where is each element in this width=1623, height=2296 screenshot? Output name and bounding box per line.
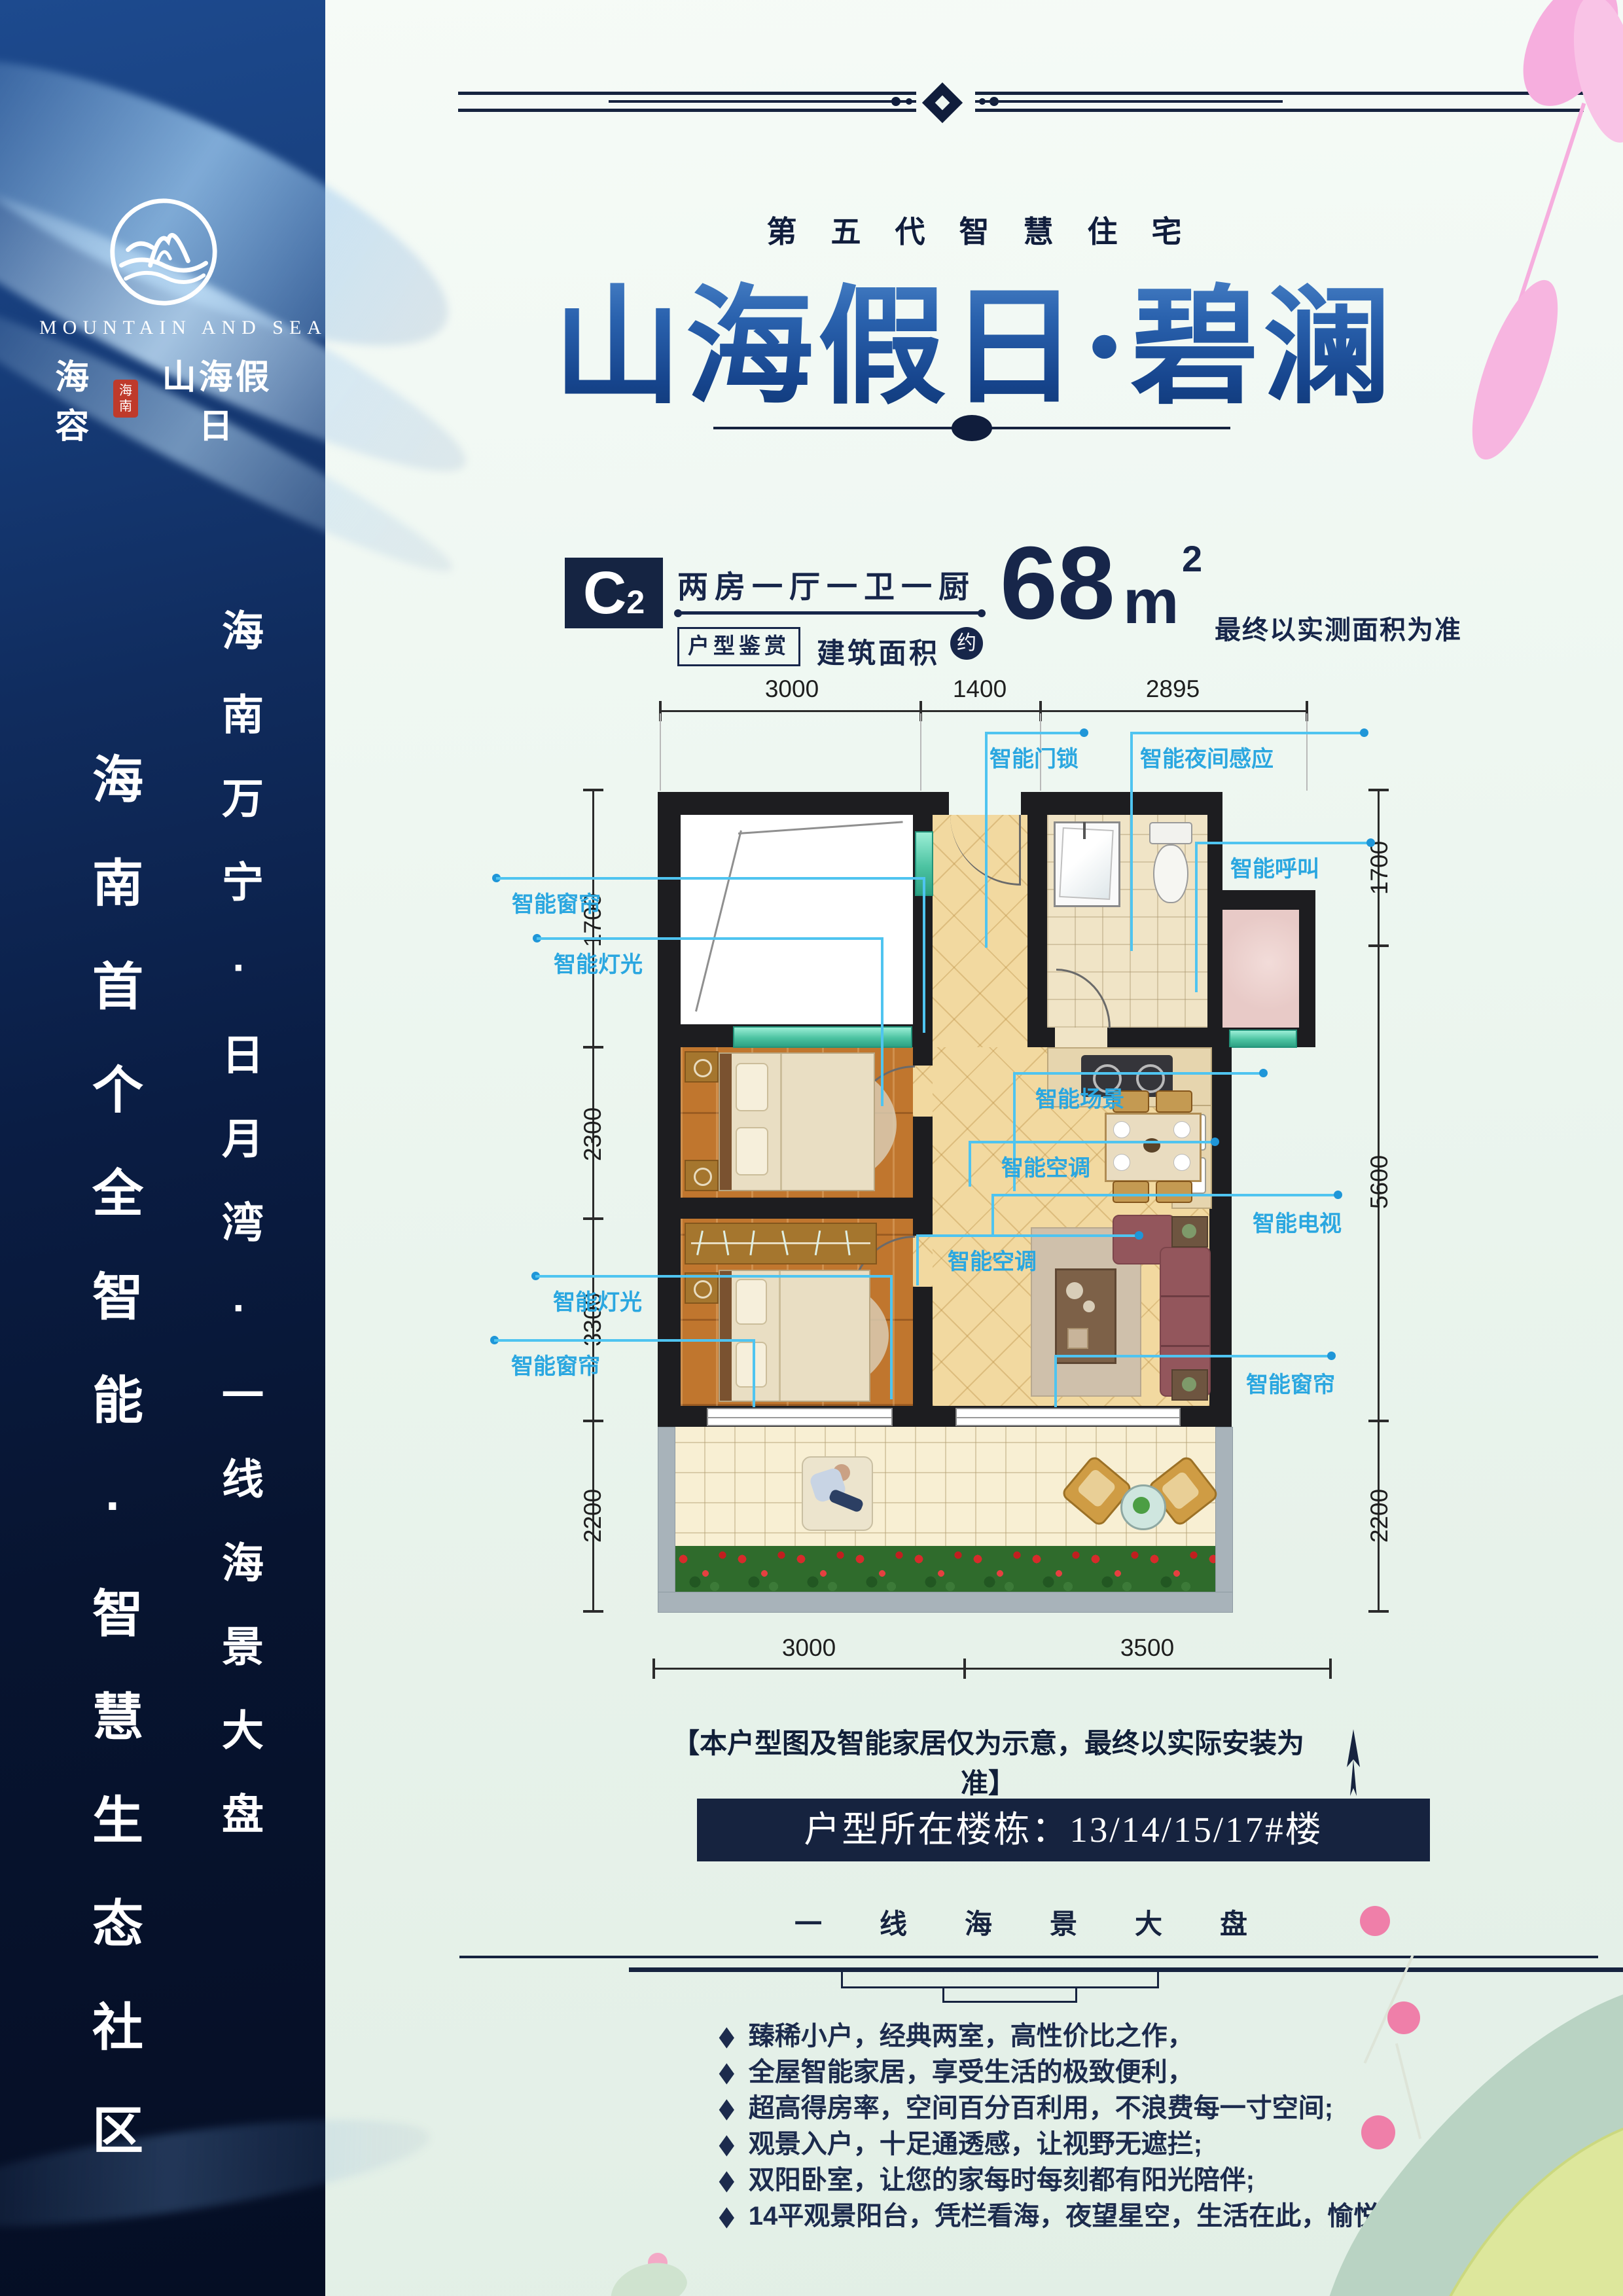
coffee-table-icon [1055,1268,1116,1364]
header-ornament-line [975,109,1584,112]
lounger-icon [802,1456,873,1531]
sidebar-slogan-community: 海南首个全智能·智慧生态社区 [77,753,151,2207]
smart-label-light-2: 智能灯光 [553,1284,642,1316]
berry-decoration [1360,1906,1390,1936]
dim-bottom-1: 3000 [770,1634,848,1662]
bullet-diamond-icon: ◆ [719,2021,734,2051]
area-label: 建筑面积 [817,631,940,672]
poster-page: MOUNTAIN AND SEA 海容 海 南 山海假日 海南万宁·日月湾·一线… [0,0,1623,2296]
dim-tick [1329,1659,1332,1679]
header-ornament-dot [906,98,912,105]
area-note: 最终以实测面积为准 [1215,609,1462,647]
label-line [890,1275,893,1399]
person-legs [828,1488,865,1513]
dim-tick [1368,1420,1389,1422]
divider-dot [978,609,986,617]
dim-right-3: 2200 [1366,1477,1393,1555]
label-line [1054,1355,1057,1407]
area-unit: m [1123,571,1179,634]
smart-label-curtain-3: 智能窗帘 [1246,1367,1335,1399]
mountain-sea-logo-icon [108,196,219,308]
label-dot [1360,728,1368,737]
logo-project-name: 山海假日 [146,350,288,448]
label-dot [1259,1069,1268,1077]
label-line [923,877,925,1033]
label-line [985,732,988,948]
smart-label-call: 智能呼叫 [1230,851,1319,883]
dim-tick [583,1046,603,1049]
adjacent-unit-area [681,815,913,1024]
label-line [496,877,925,880]
logo-english-text: MOUNTAIN AND SEA [39,317,288,339]
side-table-icon [1171,1216,1208,1247]
dining-chair-icon [1156,1090,1192,1113]
dim-line-bottom [654,1668,1332,1670]
label-dot [1334,1191,1342,1199]
wall [1209,1047,1232,1406]
feature-item: ◆14平观景阳台，凭栏看海，夜望星空，生活在此，愉悦一生。 [717,2195,1458,2233]
area-value: 68 [1000,531,1115,635]
wardrobe-icon [685,1223,877,1265]
label-dot [1327,1352,1336,1360]
dim-ext [920,713,921,791]
window-strip [1229,1030,1297,1048]
wall [1027,815,1047,1047]
approx-badge: 约 [950,627,983,660]
header-ornament-dot [891,97,901,106]
label-line [1130,732,1133,951]
sidebar-streak [0,2098,435,2248]
door-gap [1055,1028,1107,1047]
dim-line-top [660,710,1307,712]
feature-item: ◆观景入户，十足通透感，让视野无遮拦; [717,2123,1202,2161]
label-dot [1080,728,1088,737]
dim-ext [660,713,661,791]
berry-decoration [1387,2001,1420,2034]
header-ornament-line [458,92,916,95]
dim-left-2: 2300 [579,1095,607,1174]
balcony-flower-bed [674,1546,1215,1594]
balcony-window [707,1408,893,1426]
wall [1021,792,1222,815]
nightstand-icon [685,1051,719,1083]
dim-tick [963,1659,966,1679]
logo-chinese-row: 海容 海 南 山海假日 [39,350,288,448]
dim-top-2: 1400 [940,675,1019,703]
dim-top-1: 3000 [753,675,831,703]
label-line [753,1339,755,1407]
label-line [1013,1072,1264,1075]
feature-item: ◆臻稀小户，经典两室，高性价比之作， [717,2015,1194,2053]
label-line [969,1141,971,1187]
balcony-rail [658,1592,1233,1613]
label-line [1054,1355,1332,1357]
strip-line-2 [629,1967,1623,1972]
bullet-diamond-icon: ◆ [719,2165,734,2195]
berry-stem [1395,2043,1421,2140]
dining-table-icon [1105,1113,1202,1182]
smart-label-night-sensor: 智能夜间感应 [1140,741,1274,773]
strip-title: 一线海景大盘 [419,1902,1623,1942]
label-line [1195,842,1370,844]
strip-ornament [942,1986,1077,2003]
label-dot [1211,1138,1219,1146]
dim-right-2: 5600 [1366,1143,1393,1221]
bullet-diamond-icon: ◆ [719,2129,734,2159]
smart-label-tv: 智能电视 [1253,1206,1342,1238]
label-line [991,1194,1339,1196]
bed-icon [719,1052,875,1191]
brand-logo: MOUNTAIN AND SEA 海容 海 南 山海假日 [39,196,288,419]
dim-bottom-2: 3500 [1108,1634,1186,1662]
label-dot [1135,1231,1143,1240]
label-line [969,1141,1216,1143]
bullet-diamond-icon: ◆ [719,2057,734,2087]
dim-tick [583,1217,603,1220]
label-line [916,1234,1140,1237]
balcony-rail [658,1427,675,1595]
header-ornament-line [975,92,1584,95]
feature-item: ◆超高得房率，空间百分百利用，不浪费每一寸空间; [717,2087,1333,2125]
north-compass-icon [1335,1728,1372,1800]
dim-tick [583,1420,603,1422]
label-line [1195,842,1198,992]
logo-seal-icon: 海 南 [113,380,139,418]
dim-tick [583,1610,603,1613]
label-dot [1366,838,1375,847]
label-line [916,1234,919,1285]
bullet-diamond-icon: ◆ [719,2093,734,2123]
nightstand-icon [685,1160,719,1191]
balcony-table-icon [1120,1484,1166,1530]
shower-icon [1054,821,1120,907]
title-divider-ellipse [952,415,992,441]
header-ornament-line [458,109,916,112]
smart-label-ac-1: 智能空调 [1001,1150,1090,1182]
dining-chair-icon [1113,1181,1149,1203]
smart-label-light-1: 智能灯光 [554,946,643,978]
toilet-tank-icon [1149,822,1192,844]
label-line [985,732,1085,734]
balcony-rail [1215,1427,1233,1595]
area-superscript: 2 [1182,541,1202,577]
label-line [494,1339,755,1342]
unit-layout-text: 两房一厅一卫一厨 [677,562,976,607]
label-line [881,937,883,1106]
plan-disclaimer-note: 【本户型图及智能家居仅为示意，最终以实际安装为准】 [654,1721,1322,1801]
dim-tick [1368,1610,1389,1613]
smart-label-door-lock: 智能门锁 [990,741,1079,773]
label-line [535,1275,893,1278]
page-title: 山海假日·碧澜 [325,243,1623,429]
smart-label-curtain-1: 智能窗帘 [512,886,601,918]
feature-item: ◆双阳卧室，让您的家每时每刻都有阳光陪伴; [717,2159,1255,2197]
wall [1222,890,1315,910]
berry-decoration [1361,2115,1395,2149]
sidebar-panel: MOUNTAIN AND SEA 海容 海 南 山海假日 海南万宁·日月湾·一线… [0,0,325,2296]
side-table-icon [1171,1369,1208,1401]
smart-label-scene: 智能场景 [1035,1081,1124,1113]
header-ornament-line [609,100,916,103]
dim-tick [583,789,603,791]
wall [1207,792,1222,1047]
bed-icon [719,1270,870,1402]
dining-chair-icon [1156,1181,1192,1203]
feature-item: ◆全屋智能家居，享受生活的极致便利， [717,2051,1194,2089]
dim-tick [1368,944,1389,947]
toilet-bowl-icon [1153,844,1188,903]
dim-tick [652,1659,655,1679]
unit-code-badge: C2 [565,558,663,628]
bullet-diamond-icon: ◆ [719,2201,734,2231]
utility-nook-floor [1222,910,1299,1028]
unit-divider-line [679,611,982,615]
wall [1299,910,1315,1047]
dim-tick [1368,789,1389,791]
label-line [537,937,883,940]
sidebar-slogan-location: 海南万宁·日月湾·一线海景大盘 [209,609,270,1876]
dim-ext [1306,713,1308,791]
label-line [991,1194,994,1234]
window-strip [733,1026,912,1048]
wall [658,792,949,815]
strip-line-1 [459,1956,1598,1958]
divider-dot [674,609,682,617]
smart-label-curtain-2: 智能窗帘 [511,1348,600,1380]
dim-left-4: 2200 [579,1477,607,1555]
smart-label-ac-2: 智能空调 [948,1244,1037,1276]
logo-brand-text: 海容 [39,350,105,448]
wall [681,1198,913,1219]
wall [658,792,681,1406]
label-line [1130,732,1364,734]
header-ornament-line [975,100,1283,103]
door-gap [913,1066,933,1117]
balcony-window [955,1408,1181,1426]
unit-tag-box: 户型鉴赏 [677,627,800,666]
dim-top-3: 2895 [1133,675,1212,703]
building-banner: 户型所在楼栋：13/14/15/17#楼 [697,1799,1430,1861]
